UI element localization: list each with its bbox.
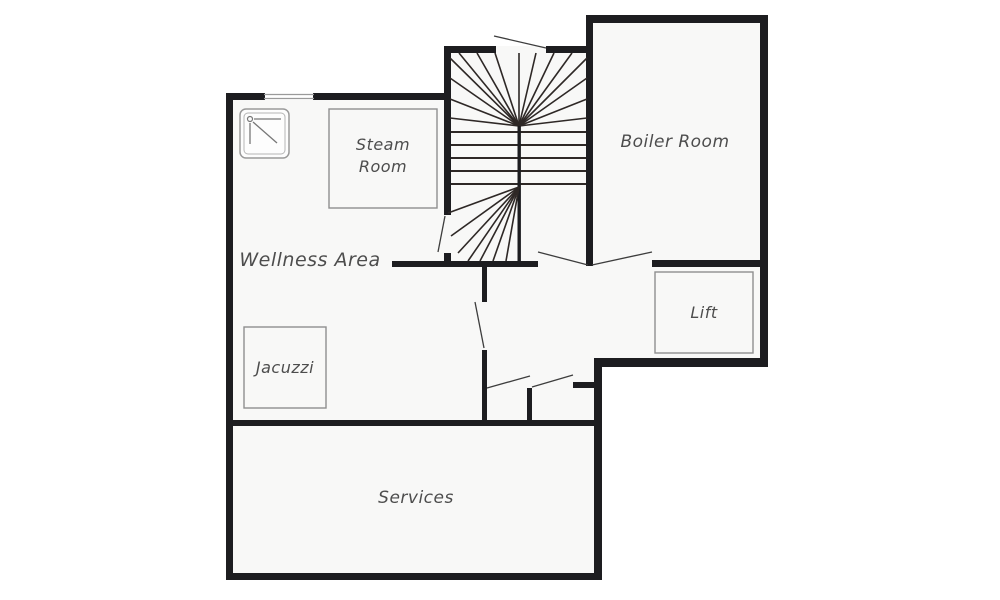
wall-stair-top-b bbox=[546, 46, 592, 53]
boiler-room-label: Boiler Room bbox=[620, 132, 729, 152]
steam-room-label-line1: Steam bbox=[356, 135, 410, 154]
wall-stair-left bbox=[444, 46, 451, 215]
wall-stair-bottom bbox=[392, 261, 538, 267]
wall-boiler-top bbox=[586, 15, 768, 23]
wall-stair-top-a bbox=[444, 46, 496, 53]
wall-right bbox=[760, 15, 768, 367]
wall-stub-b bbox=[573, 382, 594, 388]
wall-stub-stair-door bbox=[444, 253, 451, 267]
wall-services-top bbox=[226, 420, 602, 426]
wall-left bbox=[226, 93, 233, 580]
floor-plan-drawing: Steam Room Boiler Room Wellness Area Jac… bbox=[0, 0, 1000, 600]
jacuzzi-label: Jacuzzi bbox=[253, 358, 314, 377]
wall-divider-lower bbox=[482, 350, 487, 420]
wall-lower-right bbox=[594, 358, 602, 580]
wall-lift-bottom bbox=[594, 358, 768, 367]
shower-tray-outer bbox=[240, 109, 289, 158]
steam-room-label-line2: Room bbox=[359, 157, 407, 176]
wall-services-bottom bbox=[226, 573, 602, 580]
wellness-area-label: Wellness Area bbox=[239, 249, 380, 271]
wall-boiler-left bbox=[586, 15, 593, 266]
services-label: Services bbox=[378, 488, 454, 508]
window-icon bbox=[264, 93, 314, 100]
wall-stub-a bbox=[527, 388, 532, 420]
wall-divider-upper bbox=[482, 266, 487, 302]
lift-label: Lift bbox=[690, 303, 717, 322]
shower-icon bbox=[240, 109, 289, 158]
floor-plan: Steam Room Boiler Room Wellness Area Jac… bbox=[0, 0, 1000, 600]
wall-top-left-b bbox=[313, 93, 451, 100]
wall-top-left-a bbox=[226, 93, 265, 100]
wall-lift-top bbox=[652, 260, 760, 267]
